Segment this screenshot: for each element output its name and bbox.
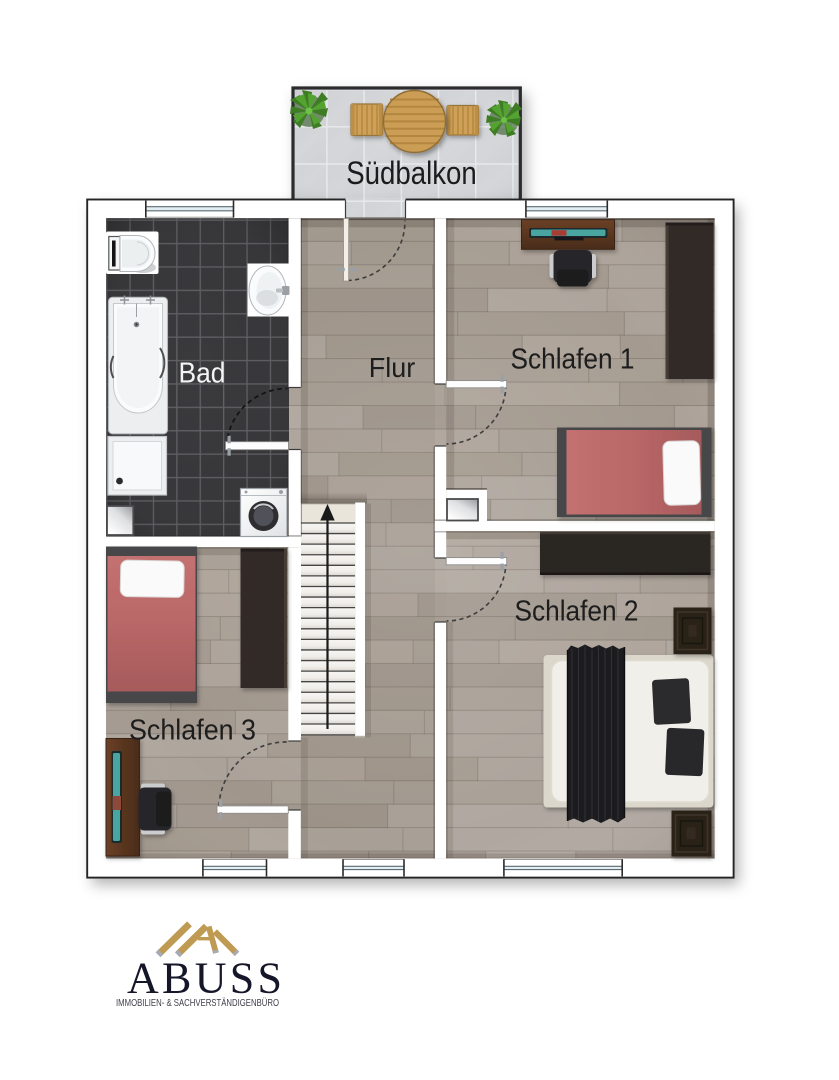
svg-text:Südbalkon: Südbalkon [346, 155, 477, 191]
svg-text:Schlafen 3: Schlafen 3 [129, 715, 256, 747]
svg-text:Schlafen 1: Schlafen 1 [511, 344, 635, 376]
svg-text:Bad: Bad [179, 358, 226, 390]
svg-text:IMMOBILIEN- & SACHVERSTÄNDIGEN: IMMOBILIEN- & SACHVERSTÄNDIGENBÜRO [116, 997, 279, 1009]
svg-text:Schlafen 2: Schlafen 2 [515, 596, 639, 628]
svg-text:ABUSS: ABUSS [127, 954, 282, 1003]
svg-text:Flur: Flur [369, 352, 416, 383]
